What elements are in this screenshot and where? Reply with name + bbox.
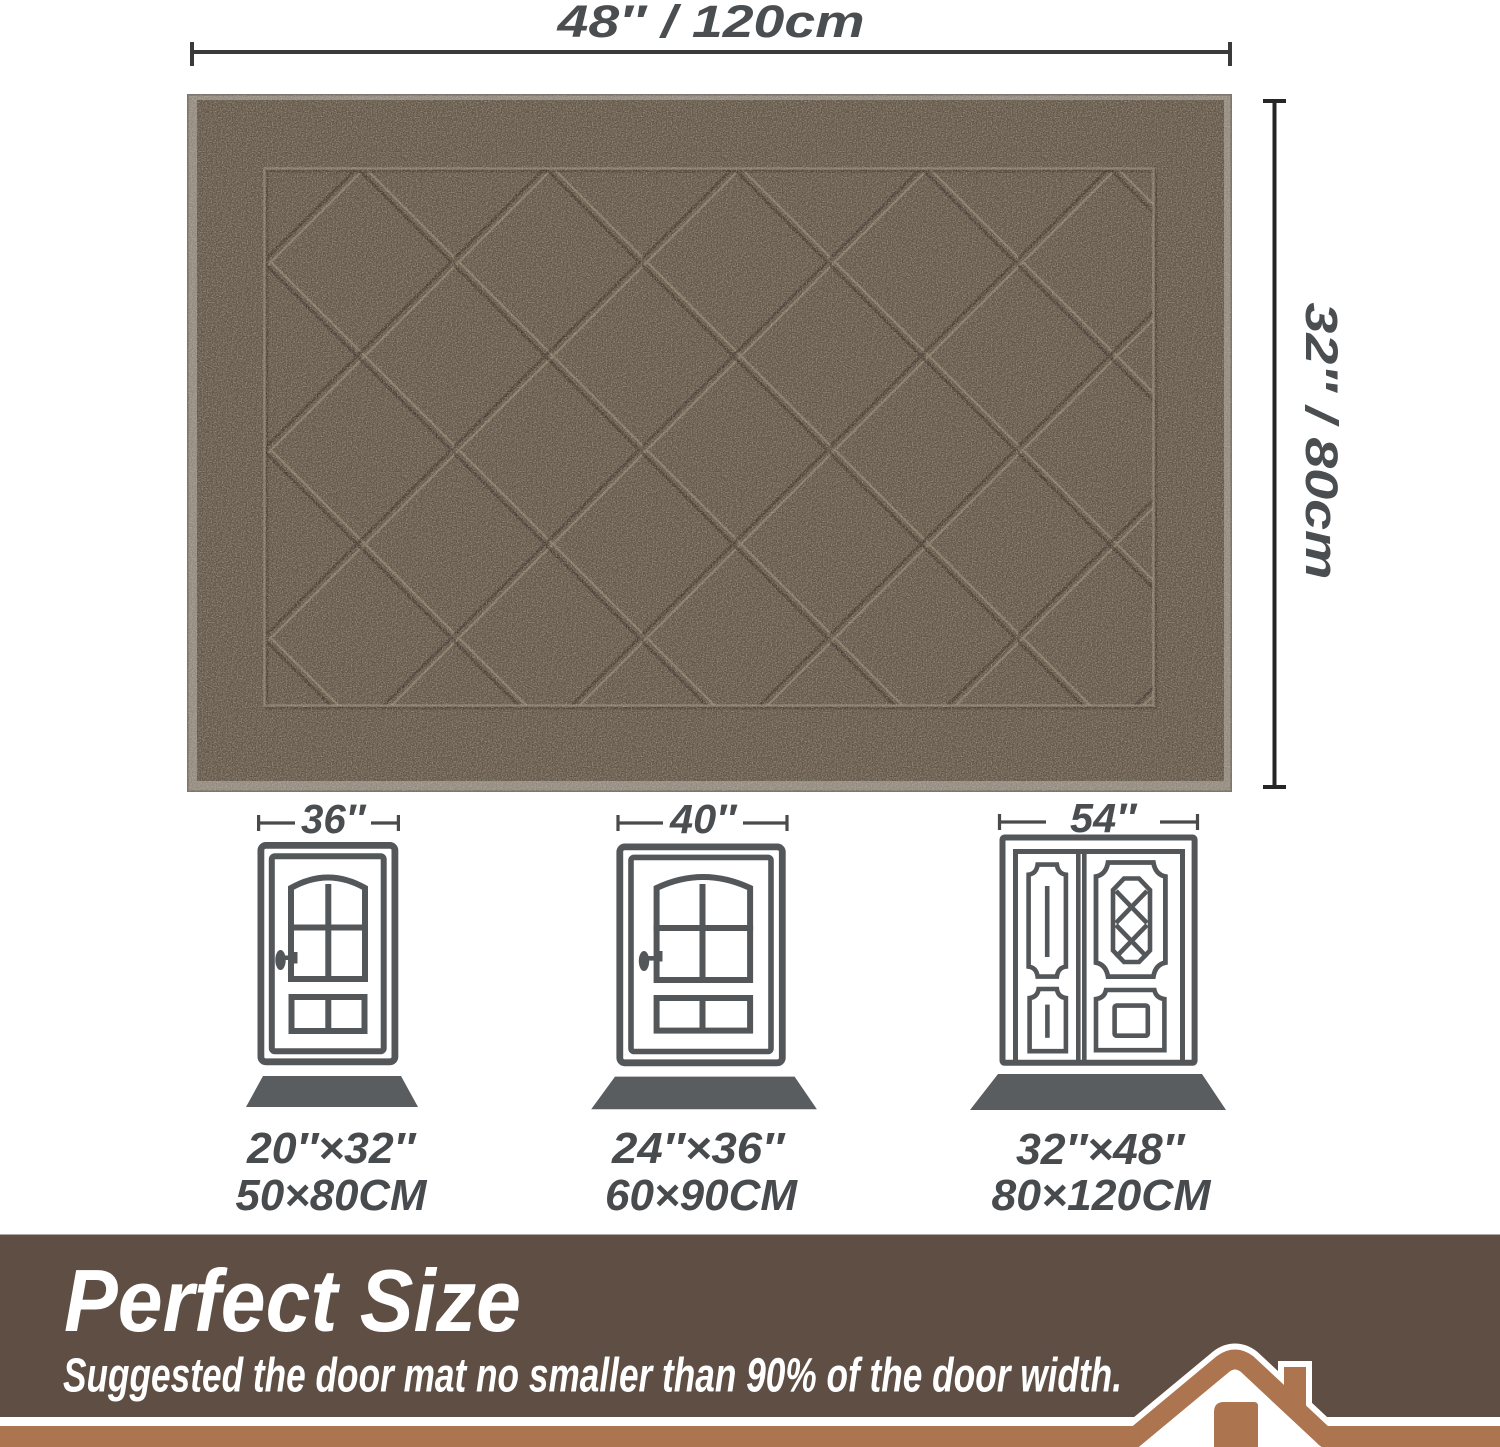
svg-text:20″×32″: 20″×32″ (246, 1124, 417, 1173)
svg-text:50×80CM: 50×80CM (236, 1171, 428, 1220)
svg-text:54″: 54″ (1070, 795, 1138, 841)
svg-text:40″: 40″ (669, 796, 738, 842)
svg-text:24″×36″: 24″×36″ (611, 1124, 786, 1173)
svg-text:80×120CM: 80×120CM (992, 1171, 1212, 1220)
svg-text:Perfect Size: Perfect Size (64, 1251, 521, 1350)
svg-text:36″: 36″ (301, 796, 367, 842)
svg-text:60×90CM: 60×90CM (605, 1171, 798, 1220)
svg-text:32″ / 80cm: 32″ / 80cm (1296, 303, 1347, 580)
svg-text:Suggested the door mat no smal: Suggested the door mat no smaller than 9… (63, 1350, 1122, 1403)
svg-text:32″×48″: 32″×48″ (1016, 1125, 1186, 1174)
svg-text:48″ / 120cm: 48″ / 120cm (556, 0, 864, 47)
